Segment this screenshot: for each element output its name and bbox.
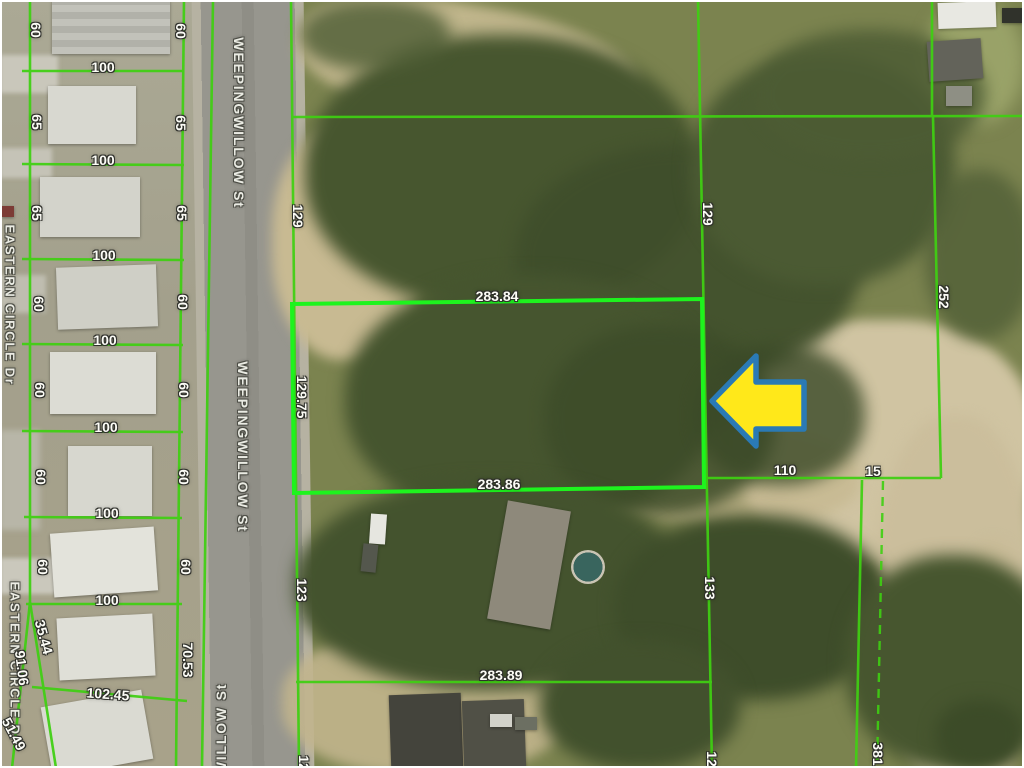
dimension-label: 65 xyxy=(29,114,45,130)
aerial-parcel-map: WEEPINGWILLOW St WEEPINGWILLOW St WILLOW… xyxy=(0,0,1024,768)
dimension-label: 12 xyxy=(296,755,312,768)
subject-parcel-bottom-dimension: 283.86 xyxy=(478,476,521,492)
street-label-weeping-willow: WEEPINGWILLOW St xyxy=(235,361,251,532)
dimension-label: 60 xyxy=(176,469,192,485)
dimension-label: 60 xyxy=(32,382,48,398)
dimension-label: 60 xyxy=(33,469,49,485)
dimension-label: 60 xyxy=(31,296,47,312)
dimension-label: 123 xyxy=(294,578,310,601)
dimension-label: 110 xyxy=(774,462,797,478)
street-label-weeping-willow: WEEPINGWILLOW St xyxy=(231,37,247,208)
subject-parcel-side-dimension: 129.75 xyxy=(294,376,310,419)
dimension-label: 60 xyxy=(178,559,194,575)
dimension-label: 133 xyxy=(702,576,718,599)
subject-parcel-top-dimension: 283.84 xyxy=(476,288,519,304)
dimension-label: 100 xyxy=(95,505,118,521)
dimension-label: 100 xyxy=(95,592,118,608)
subject-parcel-outline xyxy=(292,299,704,493)
dimension-label: 60 xyxy=(28,22,44,38)
dimension-label: 102.45 xyxy=(86,685,130,704)
dimension-label: 100 xyxy=(91,59,114,75)
dimension-label: 65 xyxy=(173,115,189,131)
parcel-overlay xyxy=(0,0,1024,768)
dimension-label: 15 xyxy=(865,463,881,479)
dimension-label: 60 xyxy=(175,294,191,310)
dimension-label: 60 xyxy=(35,559,51,575)
dimension-label: 60 xyxy=(176,382,192,398)
street-label-eastern-circle: EASTERN CIRCLE Dr xyxy=(3,225,18,386)
dimension-label: 70.53 xyxy=(180,642,196,677)
dimension-label: 283.89 xyxy=(480,667,523,683)
dimension-label: 65 xyxy=(174,205,190,221)
boundary-line xyxy=(856,480,862,768)
dashed-boundary-line xyxy=(877,481,883,768)
boundary-line xyxy=(291,116,1024,117)
dimension-label: 65 xyxy=(29,205,45,221)
dimension-label: 129 xyxy=(290,204,306,227)
dimension-label: 100 xyxy=(92,247,115,263)
dimension-label: 100 xyxy=(91,152,114,168)
dimension-label: 252 xyxy=(936,285,952,308)
dimension-label: 12 xyxy=(704,751,720,767)
highlight-arrow-icon xyxy=(712,356,804,446)
street-label-weeping-willow-partial: WILLOW St xyxy=(213,683,229,768)
dimension-label: 100 xyxy=(94,419,117,435)
dimension-label: 129 xyxy=(700,202,716,225)
parcel-boundary-lines xyxy=(12,0,1024,768)
boundary-line xyxy=(202,0,213,768)
dimension-label: 100 xyxy=(93,332,116,348)
dimension-label: 381 xyxy=(870,742,886,765)
dimension-label: 60 xyxy=(173,23,189,39)
